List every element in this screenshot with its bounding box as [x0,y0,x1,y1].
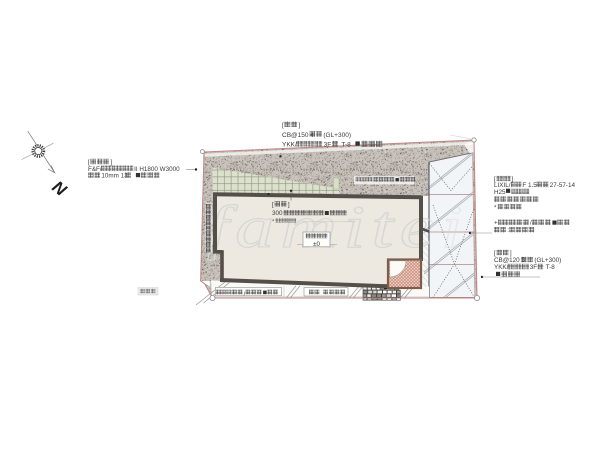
svg-text:[: [ [272,202,274,209]
svg-text:]: ] [298,122,300,129]
svg-text:+: + [494,220,498,227]
svg-text:II H1800 W3000: II H1800 W3000 [134,166,180,173]
svg-text:T-8: T-8 [341,142,351,149]
svg-text:(GL+300): (GL+300) [534,257,561,264]
svg-text:10mm 13: 10mm 13 [101,173,128,180]
svg-text:CB@120 3: CB@120 3 [494,257,525,264]
svg-text:[: [ [282,122,284,129]
svg-text:H25: H25 [494,189,506,196]
svg-text:27-57-14: 27-57-14 [550,182,576,189]
svg-text:300: 300 [272,210,283,217]
svg-text:[: [ [494,250,496,257]
svg-text:]: ] [110,159,112,166]
svg-text:±0: ±0 [313,241,320,248]
svg-text:/: / [530,220,532,227]
svg-text:F 1.5: F 1.5 [522,182,537,189]
svg-text:3F: 3F [530,264,538,271]
svg-text:(GL+300): (GL+300) [323,132,351,139]
svg-text:F&F/: F&F/ [88,166,102,173]
svg-text::: : [507,227,509,234]
svg-text:]: ] [510,250,512,257]
svg-text:]: ] [288,202,290,209]
svg-text:YKK/: YKK/ [282,142,297,149]
svg-text:YKK/: YKK/ [494,264,509,271]
svg-text:CB@150 4: CB@150 4 [282,132,314,139]
svg-text:T-8: T-8 [546,264,556,271]
svg-text:3F: 3F [324,142,332,149]
